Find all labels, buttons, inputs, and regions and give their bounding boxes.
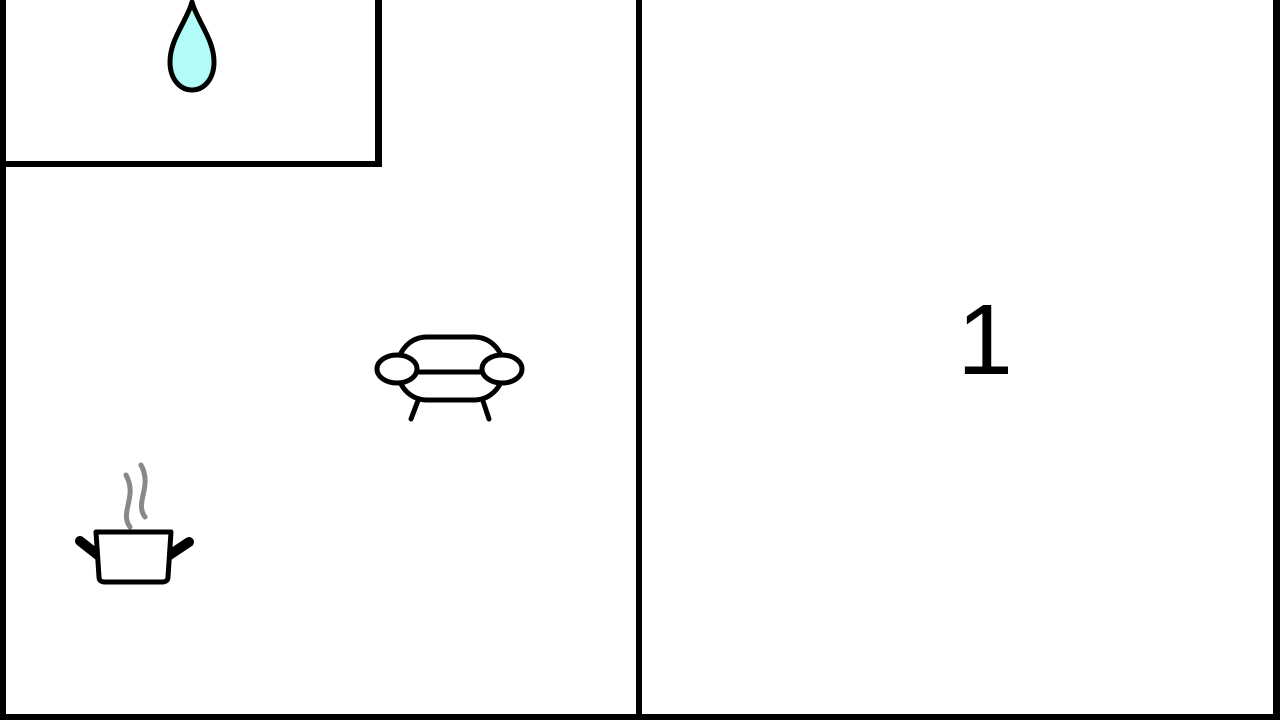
steam-wave-left — [126, 475, 130, 527]
floor-plan-canvas: 1 — [0, 0, 1280, 720]
cooking-pot-icon — [58, 448, 203, 593]
water-drop-shape — [170, 2, 214, 90]
sofa-armrest-right — [482, 355, 522, 383]
wall-left — [0, 0, 6, 720]
pot-body — [96, 532, 171, 582]
room-number-label: 1 — [925, 290, 1045, 390]
wall-right — [1273, 0, 1280, 720]
sofa-icon — [370, 328, 526, 428]
water-drop-icon — [164, 0, 220, 93]
wall-room-divider — [636, 0, 642, 720]
wall-top-left-room-right — [375, 0, 382, 167]
sofa-armrest-left — [377, 355, 417, 383]
steam-wave-right — [141, 465, 145, 517]
wall-top-left-room-bottom — [0, 161, 382, 167]
